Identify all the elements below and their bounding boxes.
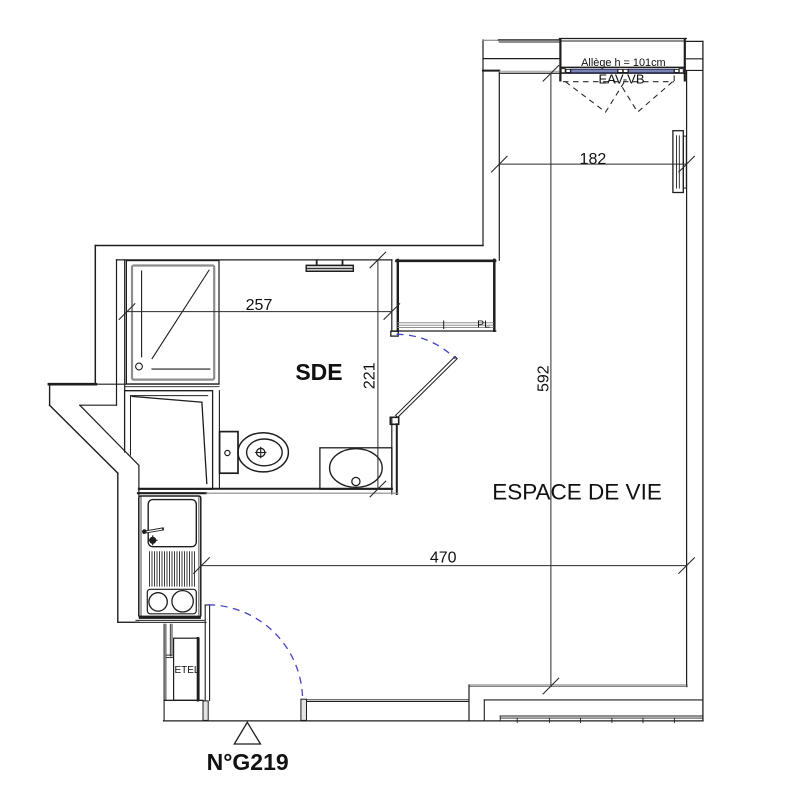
svg-text:182: 182	[580, 151, 607, 168]
svg-text:Allège h = 101cm: Allège h = 101cm	[581, 57, 665, 69]
svg-text:PL: PL	[477, 319, 490, 331]
svg-text:221: 221	[362, 362, 379, 389]
svg-text:470: 470	[430, 550, 457, 567]
svg-text:257: 257	[246, 297, 273, 314]
svg-text:592: 592	[536, 365, 553, 392]
svg-text:N°G219: N°G219	[207, 749, 289, 775]
svg-text:SDE: SDE	[295, 359, 342, 385]
svg-text:ETEL: ETEL	[174, 665, 199, 676]
svg-text:ESPACE DE VIE: ESPACE DE VIE	[492, 479, 662, 504]
svg-text:EAV-VB: EAV-VB	[598, 72, 644, 87]
